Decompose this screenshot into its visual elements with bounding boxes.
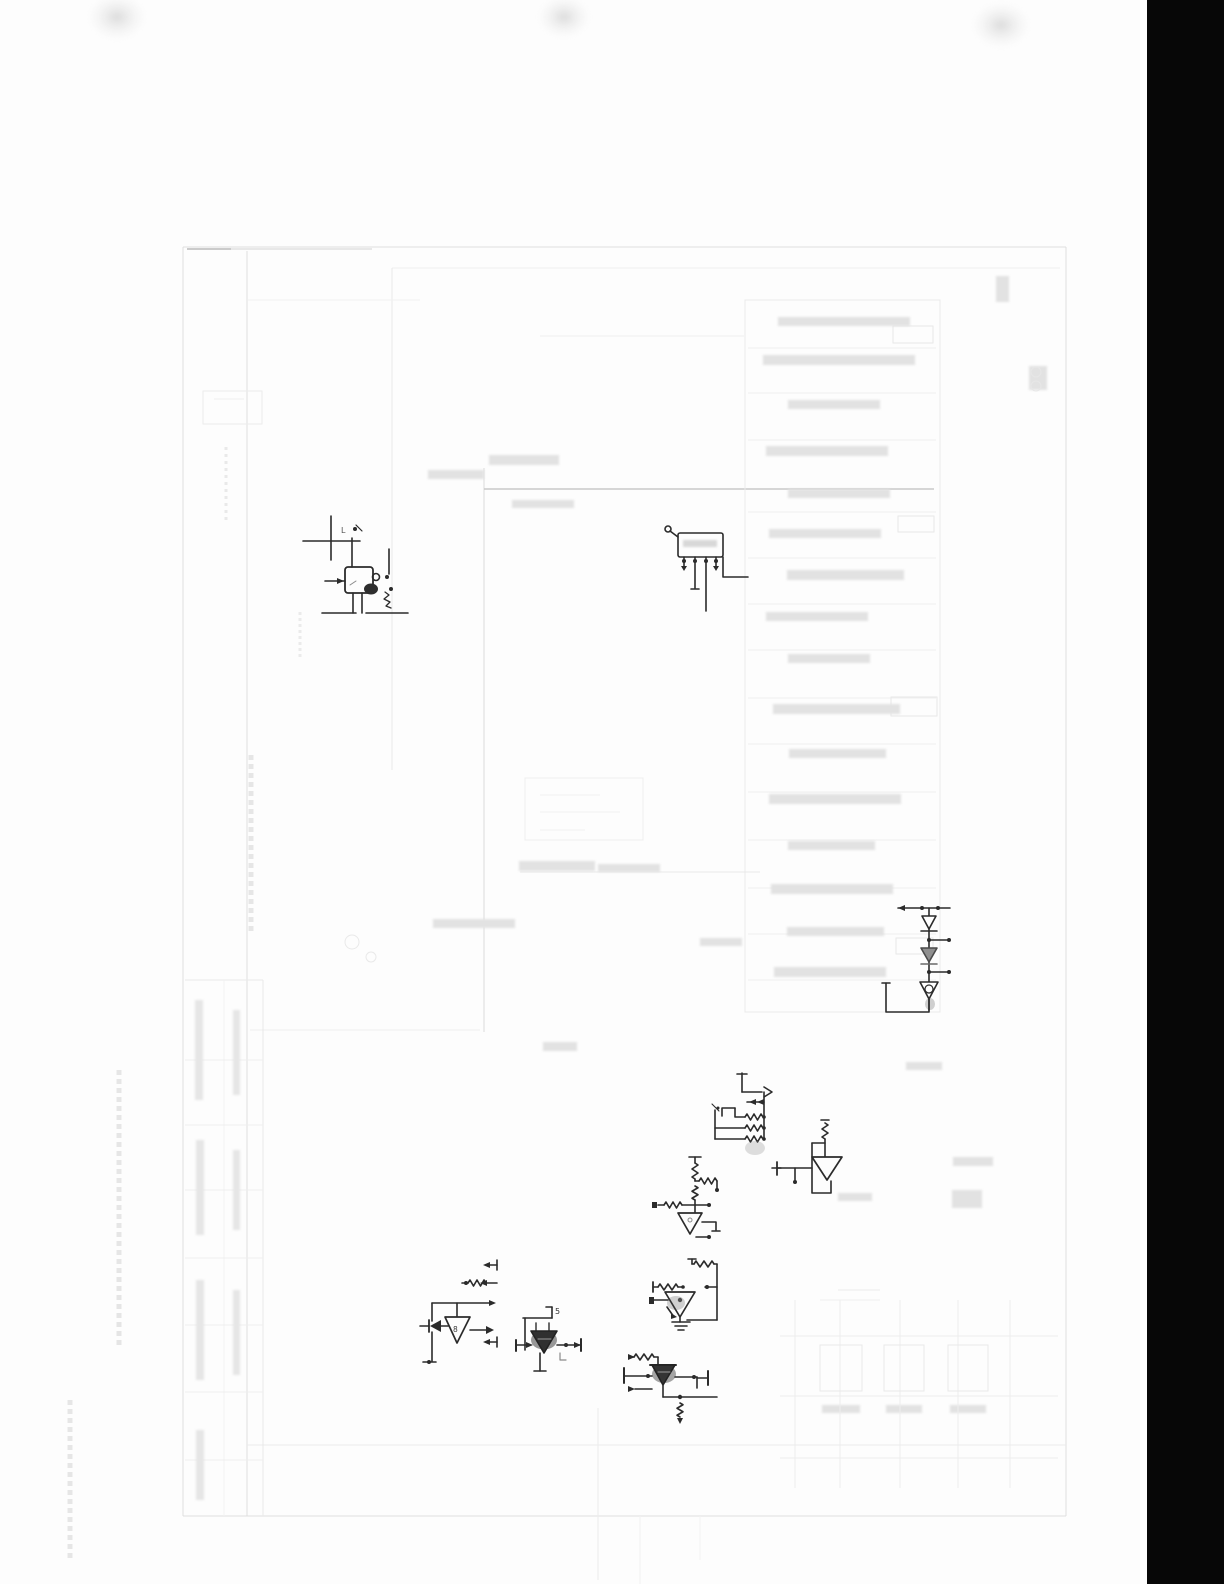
component-opamp-with-diode: 8 — [420, 1260, 497, 1364]
component-power-stage — [624, 1354, 717, 1424]
component-opamp-ladder — [652, 1157, 720, 1239]
component-capacitor-transistor-block: L — [303, 516, 408, 613]
scanned-schematic-page: L — [0, 0, 1224, 1584]
component-buffer-amp — [772, 1120, 842, 1193]
amp-triangle — [812, 1157, 842, 1180]
diode-1 — [922, 916, 936, 929]
component-resistor-network — [712, 1073, 772, 1155]
component-i-mark: 8 — [453, 1325, 458, 1334]
opamp-triangle — [678, 1213, 702, 1234]
component-opamp-2 — [649, 1259, 717, 1330]
transistor-blob — [364, 584, 378, 595]
component-ic-block-with-pins — [665, 526, 748, 611]
component-a-mark: L — [341, 526, 346, 535]
component-j-mark: 5 — [555, 1307, 560, 1316]
component-dark-transistor: 5 — [516, 1307, 581, 1371]
diode-2 — [921, 948, 937, 962]
ink-components-layer: L — [0, 0, 1224, 1584]
component-diode-chain — [882, 905, 951, 1012]
scan-black-bar — [1147, 0, 1224, 1584]
diode — [430, 1320, 441, 1332]
